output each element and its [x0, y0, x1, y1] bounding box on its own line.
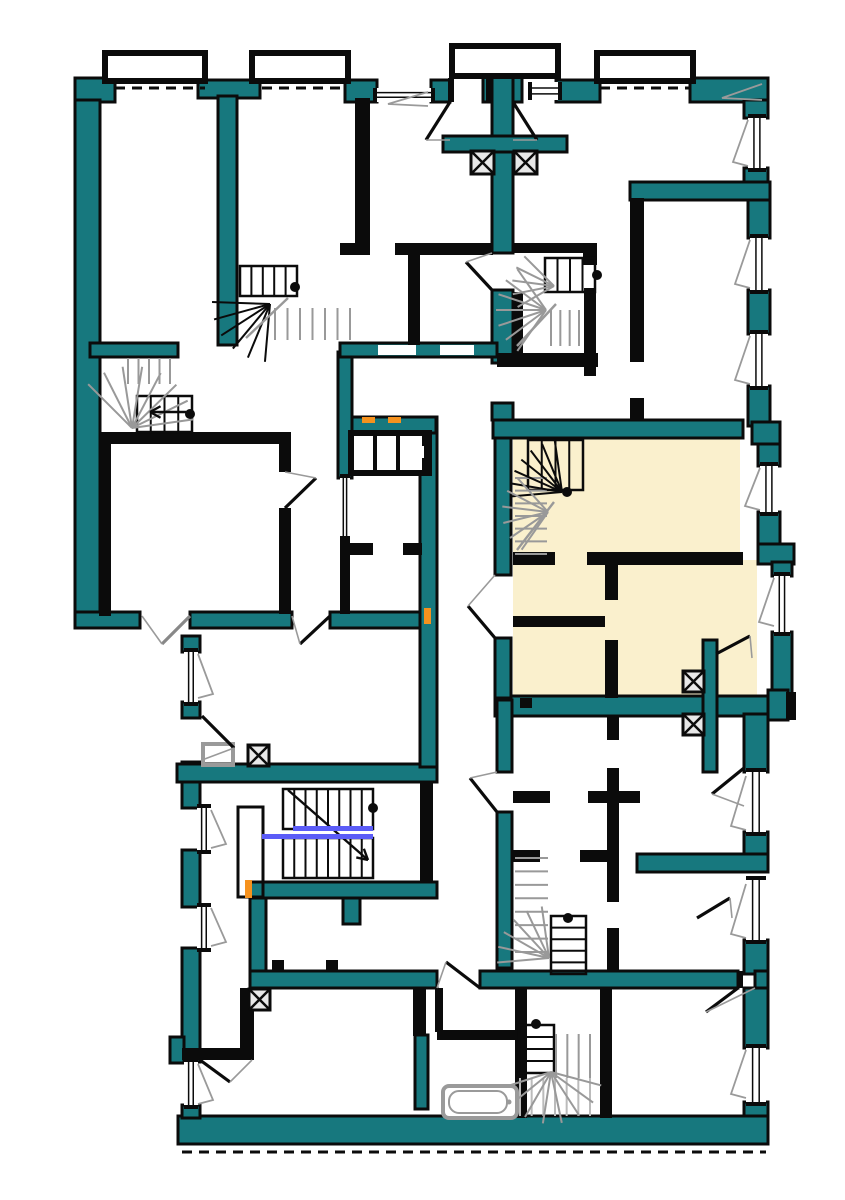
- door-swing: [292, 616, 300, 644]
- stair-newel-dot: [185, 409, 195, 419]
- wall-load-bearing: [75, 100, 100, 622]
- window-casement: [735, 240, 750, 288]
- window-jamb: [750, 386, 768, 390]
- wall-load-bearing: [772, 632, 792, 698]
- wall-load-bearing: [752, 422, 780, 444]
- stair-flight-outline: [551, 916, 586, 974]
- wall-partition: [435, 988, 443, 1032]
- wall-partition: [413, 988, 426, 1036]
- wall-load-bearing: [758, 512, 780, 546]
- floor-plan-svg: [0, 0, 845, 1200]
- wall-load-bearing: [748, 200, 770, 238]
- window-jamb: [340, 474, 350, 478]
- wall-partition: [513, 616, 605, 627]
- window: [746, 772, 766, 832]
- wall-partition: [607, 716, 619, 740]
- utility-marker-orange: [388, 417, 401, 423]
- window-jamb: [528, 82, 532, 100]
- wall-opening: [377, 436, 396, 470]
- window: [760, 466, 778, 512]
- window-jamb: [746, 1044, 766, 1048]
- window-casement: [731, 1050, 746, 1098]
- utility-marker-orange: [362, 417, 375, 423]
- window-bay: [452, 46, 558, 76]
- window: [340, 478, 350, 536]
- window-jamb: [750, 234, 768, 238]
- wall-partition: [605, 640, 618, 698]
- window-jamb: [558, 82, 562, 100]
- utility-marker-orange: [424, 608, 431, 624]
- wall-load-bearing: [755, 971, 768, 988]
- wall-partition: [607, 928, 619, 972]
- wall-partition: [408, 253, 420, 345]
- window-jamb: [197, 850, 211, 854]
- window-casement: [733, 120, 748, 166]
- wall-opening: [378, 345, 416, 355]
- window-jamb: [184, 1105, 198, 1109]
- window-jamb: [760, 512, 778, 516]
- wall-partition: [607, 768, 619, 902]
- door-swing: [202, 748, 234, 760]
- wall-load-bearing: [630, 182, 770, 200]
- window-jamb: [774, 572, 790, 576]
- window-jamb: [746, 1102, 766, 1106]
- door-leaf: [706, 988, 738, 1012]
- window-casement: [731, 884, 746, 938]
- wall-partition: [580, 850, 607, 862]
- stair-newel-dot: [563, 913, 573, 923]
- wall-partition: [279, 508, 291, 614]
- wall-partition: [272, 960, 284, 972]
- window-casement: [198, 1064, 213, 1104]
- wall-partition: [486, 78, 492, 102]
- wall-load-bearing: [497, 700, 512, 772]
- wall-partition: [340, 243, 370, 255]
- door-leaf: [446, 962, 480, 988]
- wall-partition: [420, 782, 433, 882]
- window-jamb: [748, 168, 766, 172]
- wall-load-bearing: [703, 640, 717, 772]
- window-casement: [745, 468, 760, 510]
- window-bay: [252, 53, 348, 81]
- window-jamb: [746, 832, 766, 836]
- door-leaf: [513, 102, 537, 140]
- window-jamb: [197, 804, 211, 808]
- window: [750, 334, 768, 386]
- wall-load-bearing: [556, 80, 600, 102]
- window-jamb: [746, 940, 766, 944]
- window-bay: [597, 53, 693, 81]
- window-casement: [731, 776, 746, 830]
- wall-opening: [354, 436, 373, 470]
- wall-load-bearing: [748, 386, 770, 426]
- window: [184, 1062, 198, 1105]
- stair-newel-dot: [368, 803, 378, 813]
- window-casement: [211, 908, 226, 946]
- door-leaf: [426, 102, 450, 140]
- wall-partition: [348, 543, 373, 555]
- wall-partition: [99, 432, 111, 616]
- wall-partition: [587, 552, 743, 565]
- wall-opening: [440, 345, 474, 355]
- floor-plan: [0, 0, 845, 1200]
- wall-load-bearing: [637, 854, 768, 872]
- wall-load-bearing: [190, 612, 292, 628]
- stair-newel-dot: [290, 282, 300, 292]
- window: [197, 808, 211, 850]
- window-jamb: [184, 1058, 198, 1062]
- wall-load-bearing: [495, 638, 511, 698]
- window-jamb: [750, 290, 768, 294]
- window: [197, 907, 211, 948]
- stair-handrail-blue: [293, 826, 373, 831]
- door-leaf: [468, 606, 495, 638]
- window-jamb: [431, 88, 435, 102]
- window: [746, 880, 766, 940]
- wall-partition: [600, 988, 612, 1118]
- window-jamb: [197, 948, 211, 952]
- door-leaf: [466, 262, 492, 290]
- wall-load-bearing: [182, 850, 200, 907]
- wall-load-bearing: [178, 1116, 768, 1144]
- window-jamb: [750, 330, 768, 334]
- wall-partition: [99, 432, 291, 444]
- window-jamb: [746, 768, 766, 772]
- door-swing: [470, 772, 497, 778]
- wall-load-bearing: [493, 420, 743, 438]
- wall-load-bearing: [497, 812, 512, 968]
- door-swing: [285, 472, 316, 478]
- window-casement: [759, 578, 774, 626]
- window: [750, 238, 768, 290]
- wall-partition: [630, 398, 644, 420]
- window-jamb: [760, 462, 778, 466]
- wall-partition: [279, 432, 291, 472]
- wall-load-bearing: [744, 988, 768, 1048]
- window: [184, 652, 198, 702]
- stair-newel-dot: [531, 1019, 541, 1029]
- wall-partition: [513, 850, 540, 862]
- wall-partition: [326, 960, 338, 972]
- wall-load-bearing: [90, 343, 178, 357]
- wall-partition: [355, 98, 370, 245]
- window-jamb: [340, 536, 350, 540]
- window: [532, 82, 558, 100]
- bathtub-drain: [507, 1100, 512, 1105]
- door-swing: [142, 616, 162, 644]
- wall-partition: [403, 543, 422, 555]
- wall-partition: [513, 791, 550, 803]
- wall-load-bearing: [492, 403, 513, 420]
- wall-load-bearing: [250, 882, 437, 898]
- window-jamb: [184, 702, 198, 706]
- wall-partition: [630, 198, 644, 362]
- door-leaf: [697, 898, 730, 918]
- wall-load-bearing: [744, 714, 768, 772]
- utility-marker-orange: [245, 880, 252, 898]
- door-swing: [730, 898, 732, 918]
- stair-handrail-blue: [262, 834, 373, 839]
- wall-partition: [737, 971, 743, 988]
- window-casement: [198, 654, 213, 698]
- wall-load-bearing: [480, 971, 738, 988]
- stair-winder-ray: [524, 256, 554, 286]
- wall-opening: [414, 446, 424, 458]
- stair-newel-dot: [562, 487, 572, 497]
- window-jamb: [373, 88, 377, 102]
- door-leaf: [470, 778, 497, 812]
- wall-load-bearing: [415, 1035, 428, 1109]
- wall-load-bearing: [748, 290, 770, 334]
- wall-partition: [605, 565, 618, 600]
- wall-partition: [497, 353, 598, 367]
- window-jamb: [184, 648, 198, 652]
- wall-partition: [437, 1030, 517, 1040]
- window-casement: [735, 336, 750, 384]
- door-leaf: [300, 616, 330, 644]
- wall-partition: [448, 78, 454, 102]
- window-jamb: [774, 632, 790, 636]
- door-swing: [468, 575, 495, 606]
- window: [774, 576, 790, 632]
- wall-load-bearing: [218, 96, 237, 345]
- window-casement: [211, 810, 226, 848]
- wall-load-bearing: [343, 898, 360, 924]
- stair-flight-outline: [240, 266, 297, 296]
- stair-newel-dot: [592, 270, 602, 280]
- wall-partition: [520, 698, 532, 708]
- window-bay: [105, 53, 205, 81]
- wall-partition: [395, 243, 493, 255]
- window-jamb: [748, 114, 766, 118]
- window-jamb: [197, 903, 211, 907]
- window: [746, 1048, 766, 1102]
- wall-load-bearing: [250, 971, 437, 988]
- wall-load-bearing: [443, 136, 567, 152]
- window-jamb: [746, 876, 766, 880]
- door-leaf: [285, 478, 316, 508]
- wall-load-bearing: [744, 940, 768, 974]
- door-swing: [230, 1060, 252, 1082]
- wall-partition: [786, 692, 796, 720]
- wall-load-bearing: [170, 1037, 184, 1063]
- wall-load-bearing: [768, 690, 788, 720]
- window: [748, 118, 766, 168]
